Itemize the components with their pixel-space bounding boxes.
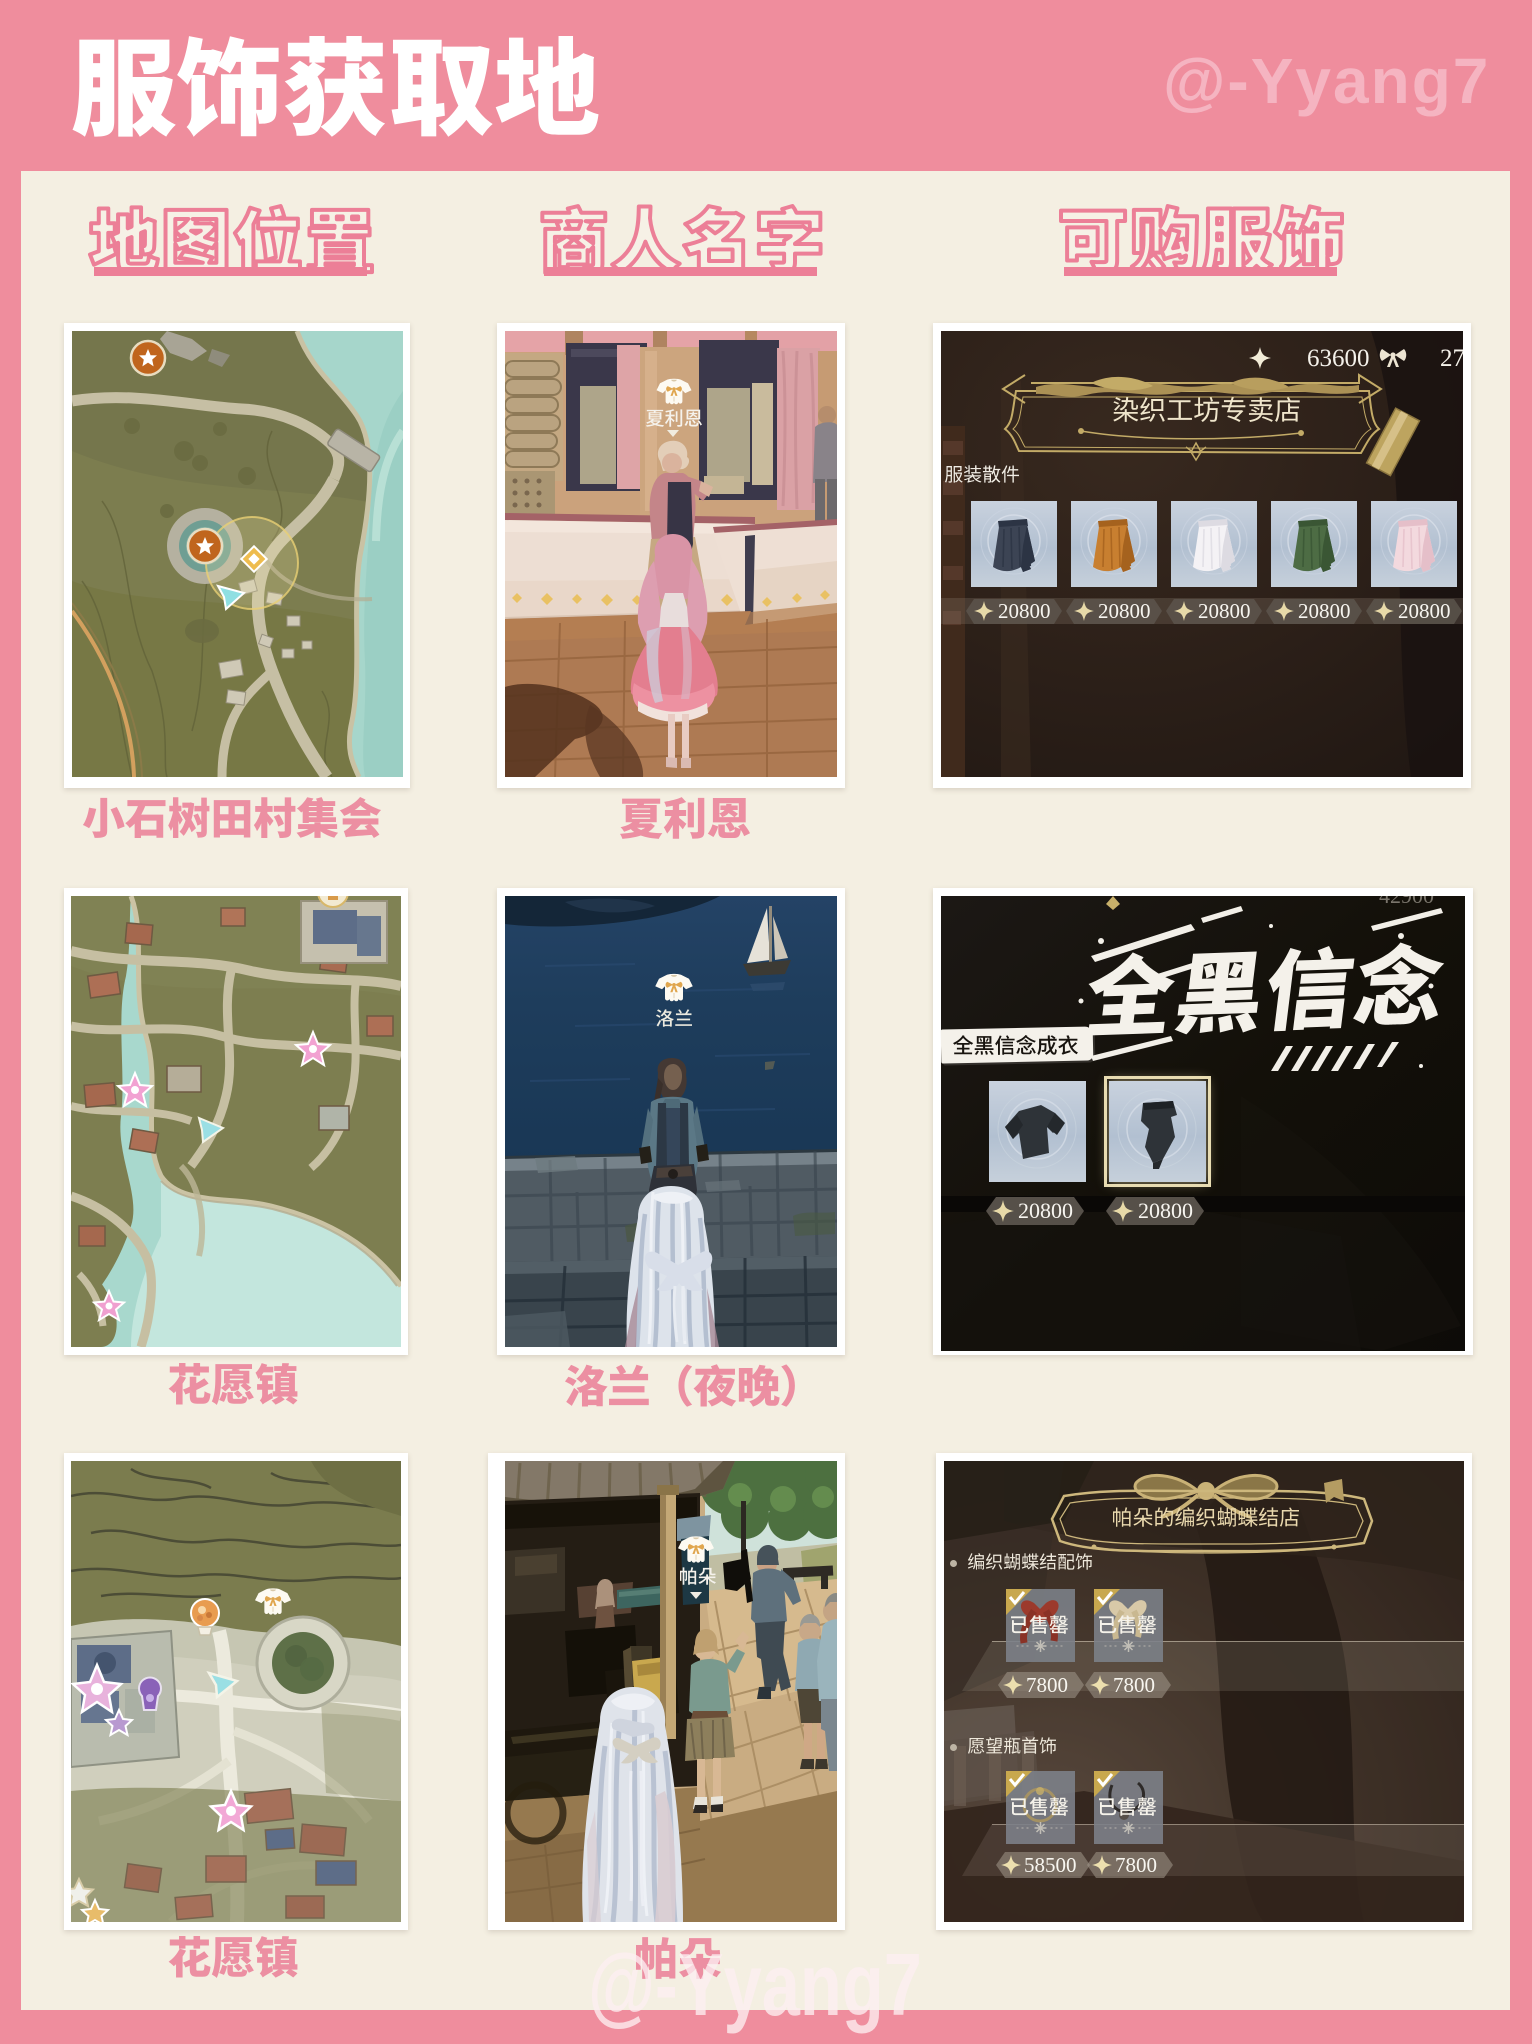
svg-text:63600: 63600 xyxy=(1307,345,1370,372)
svg-text:7800: 7800 xyxy=(1115,1853,1157,1877)
svg-text:20800: 20800 xyxy=(1298,599,1351,623)
svg-text:20800: 20800 xyxy=(998,599,1051,623)
svg-text:20800: 20800 xyxy=(1398,599,1451,623)
svg-text:58500: 58500 xyxy=(1024,1853,1077,1877)
svg-text:7800: 7800 xyxy=(1113,1673,1155,1697)
svg-text:275: 275 xyxy=(1440,345,1463,372)
svg-text:7800: 7800 xyxy=(1026,1673,1068,1697)
svg-text:20800: 20800 xyxy=(1018,1198,1073,1223)
svg-text:20800: 20800 xyxy=(1098,599,1151,623)
svg-text:20800: 20800 xyxy=(1138,1198,1193,1223)
svg-text:42900: 42900 xyxy=(1379,896,1434,908)
svg-text:20800: 20800 xyxy=(1198,599,1251,623)
